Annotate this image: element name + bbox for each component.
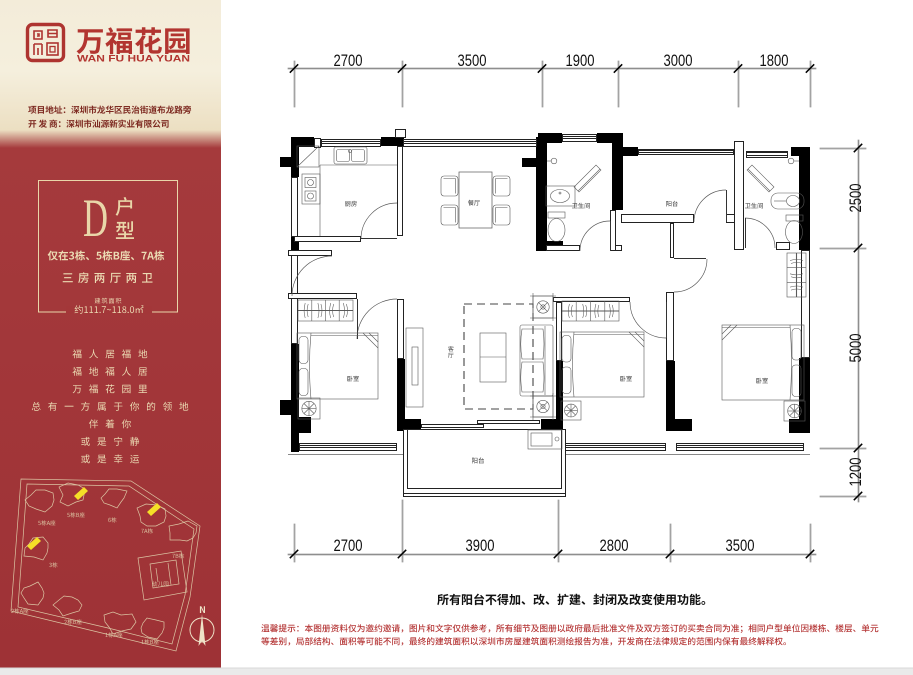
svg-text:2500: 2500 — [846, 184, 865, 213]
svg-text:1800: 1800 — [760, 51, 789, 70]
svg-text:1900: 1900 — [566, 51, 595, 70]
svg-text:D: D — [83, 188, 108, 248]
svg-text:1200: 1200 — [846, 458, 865, 487]
svg-text:3500: 3500 — [458, 51, 487, 70]
svg-text:2800: 2800 — [600, 536, 629, 555]
svg-text:5000: 5000 — [846, 334, 865, 363]
svg-text:3900: 3900 — [466, 536, 495, 555]
svg-text:3000: 3000 — [664, 51, 693, 70]
svg-text:2700: 2700 — [334, 51, 363, 70]
svg-text:2700: 2700 — [334, 536, 363, 555]
svg-text:WAN FU HUA YUAN: WAN FU HUA YUAN — [77, 54, 190, 64]
svg-text:3500: 3500 — [726, 536, 755, 555]
